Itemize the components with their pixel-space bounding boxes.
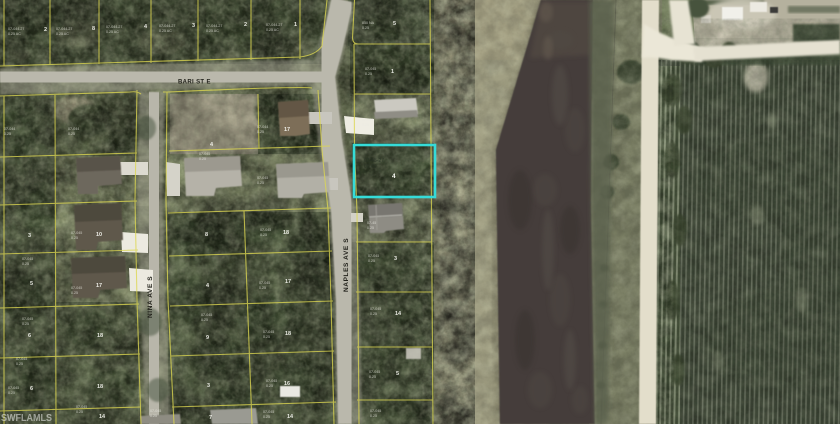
svg-text:0.25: 0.25 xyxy=(362,123,369,127)
svg-text:07-045: 07-045 xyxy=(8,386,19,390)
svg-text:0.25: 0.25 xyxy=(22,262,29,266)
svg-text:4: 4 xyxy=(392,173,396,180)
svg-text:0.25: 0.25 xyxy=(365,72,372,76)
svg-text:18: 18 xyxy=(283,230,289,236)
svg-text:18: 18 xyxy=(285,331,291,337)
svg-text:07-045: 07-045 xyxy=(201,313,212,317)
svg-text:5: 5 xyxy=(396,371,399,377)
svg-text:07-045: 07-045 xyxy=(368,254,379,258)
svg-text:1: 1 xyxy=(294,22,297,28)
svg-text:07-045: 07-045 xyxy=(362,118,373,122)
svg-text:2: 2 xyxy=(44,27,47,33)
svg-text:0.25: 0.25 xyxy=(263,415,270,419)
svg-text:NAPLES AVE S: NAPLES AVE S xyxy=(343,238,350,292)
svg-text:0.25: 0.25 xyxy=(368,259,375,263)
svg-text:07-045: 07-045 xyxy=(263,410,274,414)
svg-text:07-045: 07-045 xyxy=(71,231,82,235)
svg-text:5: 5 xyxy=(393,21,396,27)
svg-text:07-044: 07-044 xyxy=(68,127,79,131)
svg-text:07-045: 07-045 xyxy=(263,330,274,334)
svg-text:07-044-27: 07-044-27 xyxy=(206,24,222,28)
svg-text:8: 8 xyxy=(205,232,208,238)
svg-text:14: 14 xyxy=(99,414,106,420)
svg-text:17: 17 xyxy=(284,127,290,133)
svg-text:0.25: 0.25 xyxy=(4,132,11,136)
svg-text:07-045: 07-045 xyxy=(22,317,33,321)
svg-text:07-045: 07-045 xyxy=(260,228,271,232)
svg-text:NINA AVE S: NINA AVE S xyxy=(147,276,154,318)
svg-text:0.25 AC: 0.25 AC xyxy=(8,32,21,36)
svg-text:0.25: 0.25 xyxy=(22,322,29,326)
svg-text:0.25: 0.25 xyxy=(71,236,78,240)
svg-text:0.25: 0.25 xyxy=(257,181,264,185)
svg-text:5: 5 xyxy=(30,281,33,287)
svg-text:07-044-27: 07-044-27 xyxy=(8,27,24,31)
svg-text:0.25: 0.25 xyxy=(71,291,78,295)
svg-text:07-045: 07-045 xyxy=(369,370,380,374)
svg-text:16: 16 xyxy=(284,381,290,387)
svg-text:07-045: 07-045 xyxy=(76,405,87,409)
svg-text:07-045: 07-045 xyxy=(370,409,381,413)
svg-text:07-045: 07-045 xyxy=(266,379,277,383)
svg-text:0.25: 0.25 xyxy=(150,414,157,418)
svg-text:8: 8 xyxy=(92,26,95,32)
svg-text:0.25: 0.25 xyxy=(199,157,206,161)
svg-text:07-045: 07-045 xyxy=(259,281,270,285)
svg-text:0.25: 0.25 xyxy=(370,414,377,418)
svg-text:6: 6 xyxy=(28,333,31,339)
svg-text:07-045: 07-045 xyxy=(16,357,27,361)
svg-text:3: 3 xyxy=(192,23,195,29)
svg-text:0.25 AC: 0.25 AC xyxy=(106,30,119,34)
svg-text:07-045: 07-045 xyxy=(150,409,161,413)
svg-text:850 NA: 850 NA xyxy=(362,21,375,25)
svg-text:07-45: 07-45 xyxy=(367,221,376,225)
svg-text:0.25: 0.25 xyxy=(263,335,270,339)
svg-text:10: 10 xyxy=(96,232,102,238)
svg-text:07-044: 07-044 xyxy=(257,125,268,129)
svg-text:0.25: 0.25 xyxy=(257,130,264,134)
svg-text:07-045: 07-045 xyxy=(257,176,268,180)
svg-text:07-045: 07-045 xyxy=(199,152,210,156)
svg-text:1: 1 xyxy=(391,69,394,75)
svg-text:0.25: 0.25 xyxy=(369,375,376,379)
svg-text:0.25: 0.25 xyxy=(8,391,15,395)
svg-text:0.25: 0.25 xyxy=(370,312,377,316)
svg-text:0.25: 0.25 xyxy=(201,318,208,322)
svg-text:0.25: 0.25 xyxy=(260,233,267,237)
svg-text:07-045: 07-045 xyxy=(370,307,381,311)
svg-text:0.25: 0.25 xyxy=(362,26,369,30)
svg-text:07-044-27: 07-044-27 xyxy=(159,24,175,28)
svg-text:07-044-27: 07-044-27 xyxy=(106,25,122,29)
svg-text:14: 14 xyxy=(395,311,402,317)
svg-text:07-045: 07-045 xyxy=(22,257,33,261)
svg-text:0.25: 0.25 xyxy=(16,362,23,366)
svg-text:3: 3 xyxy=(394,256,397,262)
svg-text:7: 7 xyxy=(209,415,212,421)
svg-text:18: 18 xyxy=(97,384,103,390)
svg-text:07-044: 07-044 xyxy=(4,127,15,131)
svg-text:07-045: 07-045 xyxy=(365,67,376,71)
svg-text:17: 17 xyxy=(285,279,291,285)
svg-text:0.25: 0.25 xyxy=(76,410,83,414)
svg-text:0.25 AC: 0.25 AC xyxy=(159,29,172,33)
svg-text:SWFLAMLS: SWFLAMLS xyxy=(1,412,52,424)
svg-text:0.25 AC: 0.25 AC xyxy=(56,32,69,36)
svg-text:9: 9 xyxy=(206,335,209,341)
svg-text:3: 3 xyxy=(207,383,210,389)
svg-text:2: 2 xyxy=(244,22,247,28)
svg-text:0.25: 0.25 xyxy=(259,286,266,290)
svg-text:18: 18 xyxy=(97,333,103,339)
svg-text:3: 3 xyxy=(28,233,31,239)
svg-text:0.25: 0.25 xyxy=(367,226,374,230)
svg-text:6: 6 xyxy=(30,386,33,392)
svg-text:17: 17 xyxy=(96,283,102,289)
svg-text:07-044-27: 07-044-27 xyxy=(266,23,282,27)
svg-text:0.25: 0.25 xyxy=(266,384,273,388)
svg-text:00.00: 00.00 xyxy=(364,164,377,170)
svg-text:0.25: 0.25 xyxy=(68,132,75,136)
svg-text:07-045: 07-045 xyxy=(71,286,82,290)
svg-text:07-044-27: 07-044-27 xyxy=(56,27,72,31)
svg-text:0.25 AC: 0.25 AC xyxy=(206,29,219,33)
svg-text:14: 14 xyxy=(287,414,294,420)
svg-text:BARI ST E: BARI ST E xyxy=(178,80,211,86)
svg-text:0.25 AC: 0.25 AC xyxy=(266,28,279,32)
